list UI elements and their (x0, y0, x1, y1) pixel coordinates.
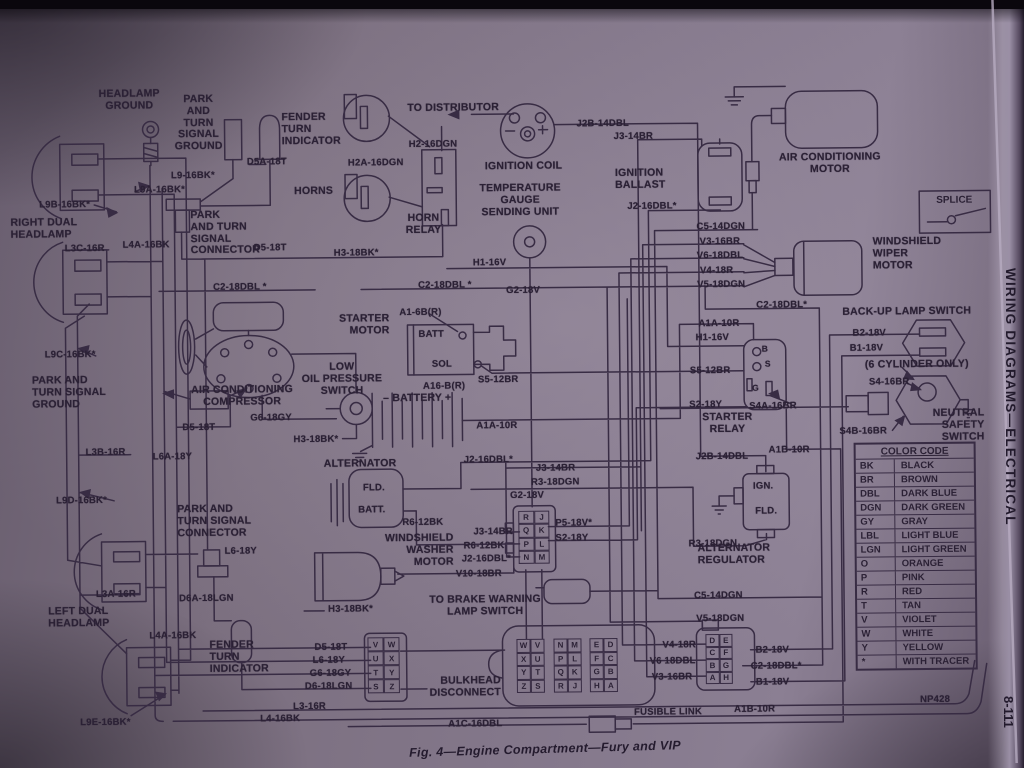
wire-label: S2-18Y (555, 532, 588, 543)
wire-label: C2-18DBL* (751, 660, 802, 671)
connector-pin: U (531, 652, 545, 666)
wire-label: V3-16BR (652, 671, 693, 682)
wire-label: BATT. (358, 504, 385, 515)
color-code-row: VVIOLET (857, 612, 975, 627)
connector-pin: M (534, 550, 550, 563)
air-conditioning-motor-label: AIR CONDITIONING MOTOR (760, 151, 900, 176)
connector-pin: R (518, 511, 534, 524)
wire-label: R3-18DGN (531, 476, 580, 487)
wire-label: D5-18T (182, 422, 215, 433)
connector-pin: H (719, 671, 733, 684)
wire-label: S5-12BR (478, 374, 519, 385)
wire-label: L9B-16BK* (39, 199, 90, 210)
wire-label: S4A-16BR (749, 400, 797, 411)
color-code-name: WHITE (896, 627, 975, 641)
wire-label: B1-18V (756, 676, 790, 687)
color-code-abbr: O (857, 557, 896, 570)
color-code-row: *WITH TRACER (858, 654, 976, 669)
color-code-row: TTAN (857, 598, 975, 613)
color-code-row: LBLLIGHT BLUE (856, 528, 974, 543)
color-code-abbr: T (857, 599, 896, 612)
connector-pin: R (554, 679, 568, 693)
color-code-abbr: LBL (856, 529, 895, 542)
connector-pin: G (719, 659, 733, 672)
wire-label: A1A-10R (476, 420, 517, 431)
color-code-abbr: P (857, 571, 896, 584)
connector-pin: Y (517, 666, 531, 680)
connector-pin: B (706, 659, 720, 672)
wire-label: L9-16BK* (171, 170, 215, 181)
wire-label: C5-14DGN (696, 221, 745, 232)
connector-pin: D (603, 638, 617, 652)
wire-label: H1-16V (696, 332, 730, 343)
starter-relay-label: STARTER RELAY (698, 412, 756, 436)
connector-pin: S (368, 679, 384, 693)
wire-label: V6 18DBL (650, 655, 696, 666)
color-code-abbr: GY (856, 515, 895, 528)
color-code-abbr: LGN (857, 543, 896, 556)
color-code-rows: BKBLACKBRBROWNDBLDARK BLUEDGNDARK GREENG… (856, 458, 976, 669)
temperature-gauge-sending-unit-label: TEMPERATURE GAUGE SENDING UNIT (466, 182, 574, 218)
color-code-abbr: DBL (856, 487, 895, 500)
color-code-row: WWHITE (857, 626, 975, 641)
ignition-coil-label: IGNITION COIL (485, 160, 585, 173)
color-code-abbr: Y (857, 641, 896, 654)
connector-pin: X (384, 651, 400, 665)
wire-label: V4-18R (662, 639, 696, 650)
connector-pin: J (534, 511, 550, 524)
color-code-name: DARK BLUE (895, 487, 974, 501)
connector-pin: V (530, 639, 544, 653)
connector-pin: N (553, 638, 567, 652)
wire-label: H1-16V (473, 257, 507, 268)
color-code-row: DGNDARK GREEN (856, 500, 974, 515)
wire-label: D6A-18LGN (179, 593, 234, 605)
wire-label: L9E-16BK* (80, 717, 130, 728)
color-code-title: COLOR CODE (856, 444, 974, 459)
color-code-table: COLOR CODE BKBLACKBRBROWNDBLDARK BLUEDGN… (854, 442, 978, 671)
wire-label: B1-18V (850, 342, 884, 353)
connector-pin: Z (384, 679, 400, 693)
wire-label: J2-16DBL* (464, 454, 513, 465)
windshield-wiper-motor-label: WINDSHIELD WIPER MOTOR (873, 236, 963, 272)
color-code-name: PINK (896, 571, 975, 585)
color-code-abbr: * (858, 655, 897, 668)
windshield-washer-motor-label: WINDSHIELD WASHER MOTOR (369, 533, 453, 569)
plate-code: NP428 (920, 694, 950, 705)
sidebar-title: WIRING DIAGRAMS—ELECTRICAL (1003, 268, 1018, 526)
bulkhead-grid-b: NMPLQKRJ (553, 638, 582, 692)
color-code-abbr: W (857, 627, 896, 640)
wire-label: A1C-16DBL (448, 718, 502, 730)
color-code-name: RED (896, 585, 975, 599)
connector-pin: A (706, 672, 720, 685)
color-code-row: BRBROWN (856, 472, 974, 487)
connector-pin: Z (517, 679, 531, 693)
color-code-name: TAN (896, 599, 975, 613)
bulkhead-grid-c: EDFCGBHA (589, 638, 618, 692)
connector-pin: X (517, 652, 531, 666)
air-conditioning-compressor-label: AIR CONDITIONING COMPRESSOR (172, 384, 312, 409)
wire-label: J2-16DBL* (462, 553, 511, 564)
starter-motor-label: STARTER MOTOR (327, 313, 389, 337)
wire-label: SOL (432, 359, 452, 370)
color-code-abbr: V (857, 613, 896, 626)
page-number: 8-111 (1001, 696, 1016, 728)
connector-pin: P (518, 537, 534, 550)
connector-pin: Y (384, 665, 400, 679)
wire-label: L6-18Y (225, 545, 257, 556)
wire-label: G6-18GY (250, 412, 292, 423)
neutral-safety-switch-label: NEUTRAL SAFETY SWITCH (888, 407, 984, 443)
wire-label: V5-18DGN (696, 613, 744, 624)
color-code-row: BKBLACK (856, 458, 974, 473)
wire-label: V5-18DGN (697, 279, 745, 290)
wire-label: S4-16BR (869, 376, 910, 387)
park-turn-signal-ground-top-label: PARK AND TURN SIGNAL GROUND (167, 94, 230, 153)
wire-label: C2-18DBL * (213, 281, 267, 293)
wire-label: D5A-18T (247, 156, 287, 167)
color-code-abbr: BK (856, 459, 895, 472)
connector-pin: Q (554, 665, 568, 679)
connector-pin: J (568, 679, 582, 693)
color-code-row: RRED (857, 584, 975, 599)
wire-label: L3C-16R (65, 243, 105, 254)
right-dual-headlamp-label: RIGHT DUAL HEADLAMP (10, 217, 92, 241)
right-connector-grid: DECFBGAH (705, 634, 732, 684)
wire-label: P5-18V* (555, 517, 592, 528)
wire-label: L9D-16BK* (56, 495, 107, 506)
headlamp-ground-label: HEADLAMP GROUND (85, 88, 173, 112)
park-turn-signal-ground-left-label: PARK AND TURN SIGNAL GROUND (32, 375, 126, 411)
connector-pin: N (519, 551, 535, 564)
wire-label: G6-18GY (310, 668, 352, 679)
wire-label: S2-18Y (689, 399, 722, 410)
wire-label: J3-14BR (536, 462, 576, 473)
connector-pin: W (516, 639, 530, 653)
wire-label: A1B-10R (769, 444, 810, 455)
color-code-row: YYELLOW (857, 640, 975, 655)
wire-label: A1B-10R (734, 703, 775, 714)
color-code-row: OORANGE (857, 556, 975, 571)
wire-label: FLD. (755, 505, 777, 516)
color-code-abbr: R (857, 585, 896, 598)
wire-label: H3-18BK* (328, 603, 373, 614)
battery-label: – BATTERY + (383, 392, 469, 405)
left-connector-grid: VWUXTYSZ (367, 637, 400, 693)
connector-pin: H (590, 679, 604, 693)
wire-label: H3-18BK* (293, 434, 338, 445)
connector-pin: U (368, 651, 384, 665)
color-code-name: LIGHT GREEN (896, 543, 975, 557)
connector-pin: V (367, 637, 383, 651)
color-code-row: PPINK (857, 570, 975, 585)
wire-label: FUSIBLE LINK (634, 706, 702, 718)
terminal-letter: S (765, 359, 771, 369)
connector-pin: G (590, 665, 604, 679)
wire-label: S4B-16BR (839, 425, 887, 436)
color-code-row: GYGRAY (856, 514, 974, 529)
wire-label: G2-18V (510, 490, 544, 501)
park-turn-signal-connector-left-label: PARK AND TURN SIGNAL CONNECTOR (177, 503, 273, 539)
wire-label: L9C-16BK* (45, 349, 96, 360)
wire-label: L3-16R (293, 701, 326, 712)
back-up-lamp-switch-label: BACK-UP LAMP SWITCH (842, 305, 997, 318)
wire-label: L3B-16R (86, 447, 126, 458)
ignition-ballast-label: IGNITION BALLAST (615, 167, 685, 191)
left-dual-headlamp-label: LEFT DUAL HEADLAMP (48, 606, 130, 630)
wire-label: FLD. (363, 482, 385, 493)
alternator-regulator-label: ALTERNATOR REGULATOR (698, 542, 792, 566)
wire-label: L6-18Y (313, 655, 345, 666)
wire-label: C2-18DBL* (756, 299, 807, 310)
connector-pin: L (534, 537, 550, 550)
color-code-name: ORANGE (896, 557, 975, 571)
connector-pin: M (567, 638, 581, 652)
wire-label: B2-18V (756, 644, 790, 655)
connector-pin: L (568, 652, 582, 666)
wire-label: J3-14BR (473, 526, 513, 537)
connector-pin: C (604, 651, 618, 665)
wire-label: S5-12BR (690, 365, 731, 376)
color-code-row: LGNLIGHT GREEN (857, 542, 975, 557)
connector-pin: A (604, 678, 618, 692)
wire-label: A1A-10R (698, 318, 739, 329)
wire-label: C5-14DGN (694, 590, 743, 601)
park-turn-signal-connector-top-label: PARK AND TURN SIGNAL CONNECTOR (190, 209, 272, 257)
wire-label: V10-18BR (456, 568, 502, 579)
wire-label: J2B-14DBL (576, 118, 629, 130)
wire-label: L4A-16BK (149, 630, 196, 641)
wire-label: A16-B(R) (423, 380, 465, 391)
wire-label: IGN. (753, 480, 773, 491)
connector-pin: F (590, 652, 604, 666)
connector-pin: S (531, 679, 545, 693)
color-code-name: VIOLET (896, 613, 975, 627)
wire-label: R6-12BK (463, 540, 504, 551)
center-connector-grid: RJQKPLNM (518, 511, 550, 564)
wire-label: D5-18T (314, 642, 347, 653)
alternator-label: ALTERNATOR (324, 458, 416, 471)
fender-turn-indicator-bottom-label: FENDER TURN INDICATOR (209, 639, 287, 675)
six-cylinder-only-label: (6 CYLINDER ONLY) (865, 358, 993, 371)
wire-label: J2B-14DBL (696, 451, 749, 463)
terminal-letter: B (762, 344, 768, 354)
wire-label: C2-18DBL * (418, 279, 472, 291)
bulkhead-grid-a: WVXUYTZS (516, 639, 545, 693)
connector-pin: C (706, 647, 720, 660)
connector-pin: D (705, 634, 719, 647)
connector-pin: E (589, 638, 603, 652)
wire-label: H2-16DGN (409, 139, 458, 150)
wire-label: J2-16DBL* (627, 200, 676, 211)
connector-pin: F (719, 646, 733, 659)
connector-pin: E (719, 634, 733, 647)
color-code-name: LIGHT BLUE (895, 529, 974, 543)
color-code-name: YELLOW (896, 641, 975, 655)
connector-pin: W (383, 637, 399, 651)
wire-label: G2-18V (506, 285, 540, 296)
connector-pin: Q (518, 524, 534, 537)
color-code-name: DARK GREEN (895, 501, 974, 515)
terminal-letter: G (752, 383, 759, 393)
connector-pin: B (604, 665, 618, 679)
wire-label: L4-16BK (260, 713, 300, 724)
horns-label: HORNS (294, 186, 344, 198)
color-code-abbr: BR (856, 473, 895, 486)
manual-page-photo: D5A-18TL9-16BK*L9A-16BK*L9B-16BK*L3C-16R… (0, 0, 1024, 768)
color-code-row: DBLDARK BLUE (856, 486, 974, 501)
wire-label: R6-12BK (402, 517, 443, 528)
color-code-abbr: DGN (856, 501, 895, 514)
color-code-name: BROWN (895, 473, 974, 487)
wire-label: BATT (418, 329, 444, 340)
splice-label: SPLICE (922, 194, 986, 206)
wire-label: V6-18DBL (697, 250, 744, 261)
color-code-name: GRAY (895, 515, 974, 529)
wiring-diagram: D5A-18TL9-16BK*L9A-16BK*L9B-16BK*L3C-16R… (0, 0, 1024, 768)
wire-label: V4-18R (700, 265, 734, 276)
wire-label: V3-16BR (700, 236, 741, 247)
connector-pin: K (534, 524, 550, 537)
connector-pin: P (554, 652, 568, 666)
wire-label: A1-6B(R) (399, 307, 441, 318)
wire-label: D6-18LGN (305, 681, 353, 692)
wire-label: L9A-16BK* (134, 184, 185, 195)
to-brake-warning-lamp-switch-label: TO BRAKE WARNING LAMP SWITCH (427, 594, 543, 619)
wire-label: L4A-16BK (123, 239, 170, 250)
wire-label: J3-14BR (614, 131, 654, 142)
to-distributor-label: TO DISTRIBUTOR (407, 102, 519, 115)
horn-relay-label: HORN RELAY (398, 213, 448, 237)
connector-pin: T (368, 665, 384, 679)
color-code-name: BLACK (895, 459, 974, 473)
wire-label: L3A-16R (96, 589, 136, 600)
wire-label: L6A-18Y (153, 451, 193, 462)
wire-label: H2A-16DGN (348, 157, 404, 169)
bulkhead-disconnect-label: BULKHEAD DISCONNECT (429, 675, 501, 699)
fender-turn-indicator-top-label: FENDER TURN INDICATOR (281, 112, 353, 148)
wire-label: H3-18BK* (334, 247, 379, 258)
wire-label: B2-18V (852, 327, 886, 338)
color-code-name: WITH TRACER (897, 655, 976, 669)
connector-pin: T (531, 666, 545, 680)
connector-pin: K (568, 665, 582, 679)
